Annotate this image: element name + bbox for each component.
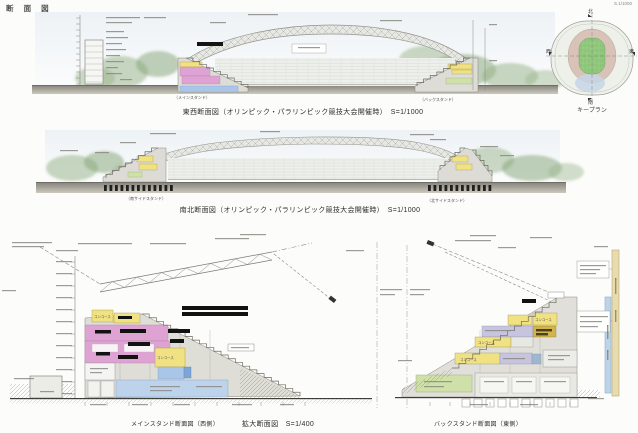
annotation-line <box>498 399 506 407</box>
annotation-line <box>424 386 444 387</box>
annotation-line <box>260 131 280 132</box>
scale-note: S.1/1000 <box>614 1 632 6</box>
annotation-line <box>498 247 516 248</box>
section-ns-caption: 南北断面図（オリンピック・パラリンピック競技大会開催時） S=1/1000 <box>180 205 421 215</box>
annotation-line <box>60 150 78 151</box>
keyplan-caption: キープラン <box>577 105 607 114</box>
drawing-sheet: コンコース コンコース <box>0 0 638 433</box>
annotation-line <box>450 185 453 191</box>
annotation-line <box>154 185 157 191</box>
annotation-line <box>280 404 294 405</box>
key-plan <box>546 14 637 102</box>
annotation-line <box>215 238 249 239</box>
enlarged-main-stand: コンコース コンコース <box>2 234 402 408</box>
annotation-line <box>148 185 151 191</box>
annotation-line <box>106 55 120 56</box>
annotation-line <box>510 399 518 407</box>
annotation-line <box>570 399 578 407</box>
annotation-line <box>40 391 54 392</box>
annotation-line <box>410 294 424 295</box>
annotation-line <box>170 185 173 191</box>
concourse-label: コンコース <box>94 314 111 319</box>
annotation-line <box>210 22 226 23</box>
annotation-line <box>132 404 148 405</box>
annotation-line <box>544 381 566 382</box>
annotation-line <box>580 321 602 322</box>
enlarged-caption-main: メインスタンド断面図（西側） <box>131 419 219 428</box>
annotation-line <box>132 185 135 191</box>
annotation-line <box>445 185 448 191</box>
annotation-line <box>483 185 486 191</box>
annotation-line <box>484 381 504 382</box>
annotation-line <box>380 294 395 295</box>
annotation-line <box>106 22 132 23</box>
annotation-line <box>520 404 538 405</box>
annotation-line <box>467 185 470 191</box>
annotation-line <box>56 357 72 358</box>
annotation-line <box>106 17 140 18</box>
annotation-line <box>485 330 511 331</box>
page-title: 断 面 図 <box>6 3 53 14</box>
annotation-line <box>231 347 249 348</box>
annotation-line <box>489 185 492 191</box>
annotation-line <box>380 20 402 21</box>
annotation-line <box>580 269 600 270</box>
annotation-line <box>478 185 481 191</box>
annotation-line <box>580 326 598 327</box>
section-east-west <box>32 12 565 94</box>
annotation-line <box>500 155 514 156</box>
annotation-line <box>615 310 616 322</box>
annotation-line <box>56 369 72 370</box>
ground-band <box>32 85 558 94</box>
annotation-line <box>14 378 34 379</box>
annotation-line <box>489 24 497 25</box>
annotation-line <box>106 37 128 38</box>
annotation-line <box>489 60 497 61</box>
annotation-line <box>12 246 44 247</box>
annotation-line <box>2 290 16 291</box>
annotation-line <box>56 345 72 346</box>
annotation-line <box>588 398 604 399</box>
annotation-line <box>298 47 320 48</box>
annotation-line <box>56 285 72 286</box>
annotation-line <box>120 142 136 143</box>
annotation-line <box>530 237 552 238</box>
annotation-line <box>455 240 491 241</box>
annotation-line <box>548 355 570 356</box>
section-ew-caption: 東西断面図（オリンピック・パラリンピック競技大会開催時） S=1/1000 <box>183 107 424 117</box>
annotation-line <box>346 250 364 251</box>
roof-label-box <box>292 44 326 53</box>
cable-anchor-icon <box>328 296 336 303</box>
annotation-line <box>165 185 168 191</box>
annotation-line <box>90 368 108 369</box>
stand-label-south: （南サイドスタンド） <box>126 196 166 202</box>
annotation-line <box>196 386 222 387</box>
annotation-line <box>534 399 542 407</box>
annotation-line <box>106 49 126 50</box>
annotation-line <box>594 246 608 247</box>
redacted-bar <box>197 42 223 46</box>
annotation-line <box>56 273 72 274</box>
annotation-line <box>456 185 459 191</box>
keyplan-entry-plaza <box>575 74 605 92</box>
annotation-line <box>615 278 616 294</box>
annotation-line <box>56 250 78 251</box>
annotation-line <box>503 358 525 359</box>
enlarged-caption-center: 拡大断面図 S=1/400 <box>242 419 314 429</box>
annotation-line <box>159 185 162 191</box>
keyplan-east-label: 東 <box>629 48 634 55</box>
annotation-line <box>56 297 72 298</box>
annotation-line <box>580 265 606 266</box>
height-scale-bars <box>577 246 619 399</box>
annotation-line <box>607 325 608 339</box>
annotation-line <box>470 235 496 236</box>
annotation-line <box>150 133 176 134</box>
concourse-label: コンコース <box>157 355 174 360</box>
annotation-line <box>472 185 475 191</box>
section-drawings: コンコース コンコース <box>0 0 638 433</box>
annotation-line <box>607 350 608 360</box>
annotation-line <box>106 43 122 44</box>
annotation-line <box>56 261 72 262</box>
annotation-line <box>110 185 113 191</box>
annotation-line <box>439 185 442 191</box>
annotation-line <box>480 146 498 147</box>
annotation-line <box>56 309 72 310</box>
annotation-line <box>380 289 402 290</box>
annotation-line <box>90 404 106 405</box>
annotation-line <box>144 17 166 18</box>
annotation-line <box>56 321 72 322</box>
enlarged-back-stand: コンコース コンコース コンコース <box>395 235 600 408</box>
annotation-line <box>398 360 412 361</box>
annotation-line <box>150 386 180 387</box>
annotation-line <box>106 61 124 62</box>
annotation-line <box>434 185 437 191</box>
annotation-line <box>90 372 102 373</box>
annotation-line <box>115 185 118 191</box>
annotation-line <box>120 79 132 80</box>
stand-label-north: （北サイドスタンド） <box>427 198 467 204</box>
stand-label-back: （バックスタンド） <box>420 97 456 103</box>
annotation-line <box>248 14 278 15</box>
annotation-line <box>126 185 129 191</box>
annotation-line <box>150 243 186 244</box>
concourse-label: コンコース <box>535 317 552 322</box>
concourse-label: コンコース <box>478 340 495 345</box>
annotation-line <box>424 381 452 382</box>
annotation-line <box>410 289 430 290</box>
annotation-line <box>104 185 107 191</box>
annotation-line <box>174 404 190 405</box>
annotation-line <box>516 381 532 382</box>
annotation-line <box>461 185 464 191</box>
annotation-line <box>143 185 146 191</box>
annotation-line <box>106 73 122 74</box>
annotation-line <box>106 31 124 32</box>
annotation-line <box>106 67 118 68</box>
concourse-label: コンコース <box>460 357 477 362</box>
adjacent-building <box>85 40 103 84</box>
annotation-line <box>474 399 482 407</box>
annotation-line <box>548 359 564 360</box>
annotation-line <box>150 390 172 391</box>
cable-anchor-icon <box>426 240 434 246</box>
keyplan-north-label: 北 <box>588 8 593 15</box>
annotation-line <box>137 185 140 191</box>
annotation-line <box>100 260 272 292</box>
annotation-line <box>580 316 608 317</box>
annotation-line <box>240 234 266 235</box>
roof-truss <box>100 254 272 292</box>
enlarged-caption-back: バックスタンド断面図（東側） <box>434 419 522 428</box>
annotation-line <box>558 399 566 407</box>
section-north-south <box>36 130 584 193</box>
annotation-line <box>430 139 446 140</box>
annotation-line <box>410 134 434 135</box>
annotation-line <box>56 333 72 334</box>
annotation-line <box>580 273 596 274</box>
stand-label-main: （メインスタンド） <box>174 95 210 101</box>
annotation-line <box>428 185 431 191</box>
annotation-line <box>462 399 470 407</box>
interior-elevation <box>215 58 455 86</box>
annotation-line <box>470 404 488 405</box>
annotation-line <box>78 243 132 244</box>
annotation-line <box>522 399 530 407</box>
keyplan-west-label: 西 <box>546 48 551 55</box>
annotation-line <box>12 242 52 243</box>
annotation-line <box>121 185 124 191</box>
annotation-line <box>95 152 109 153</box>
annotation-line <box>232 404 252 405</box>
